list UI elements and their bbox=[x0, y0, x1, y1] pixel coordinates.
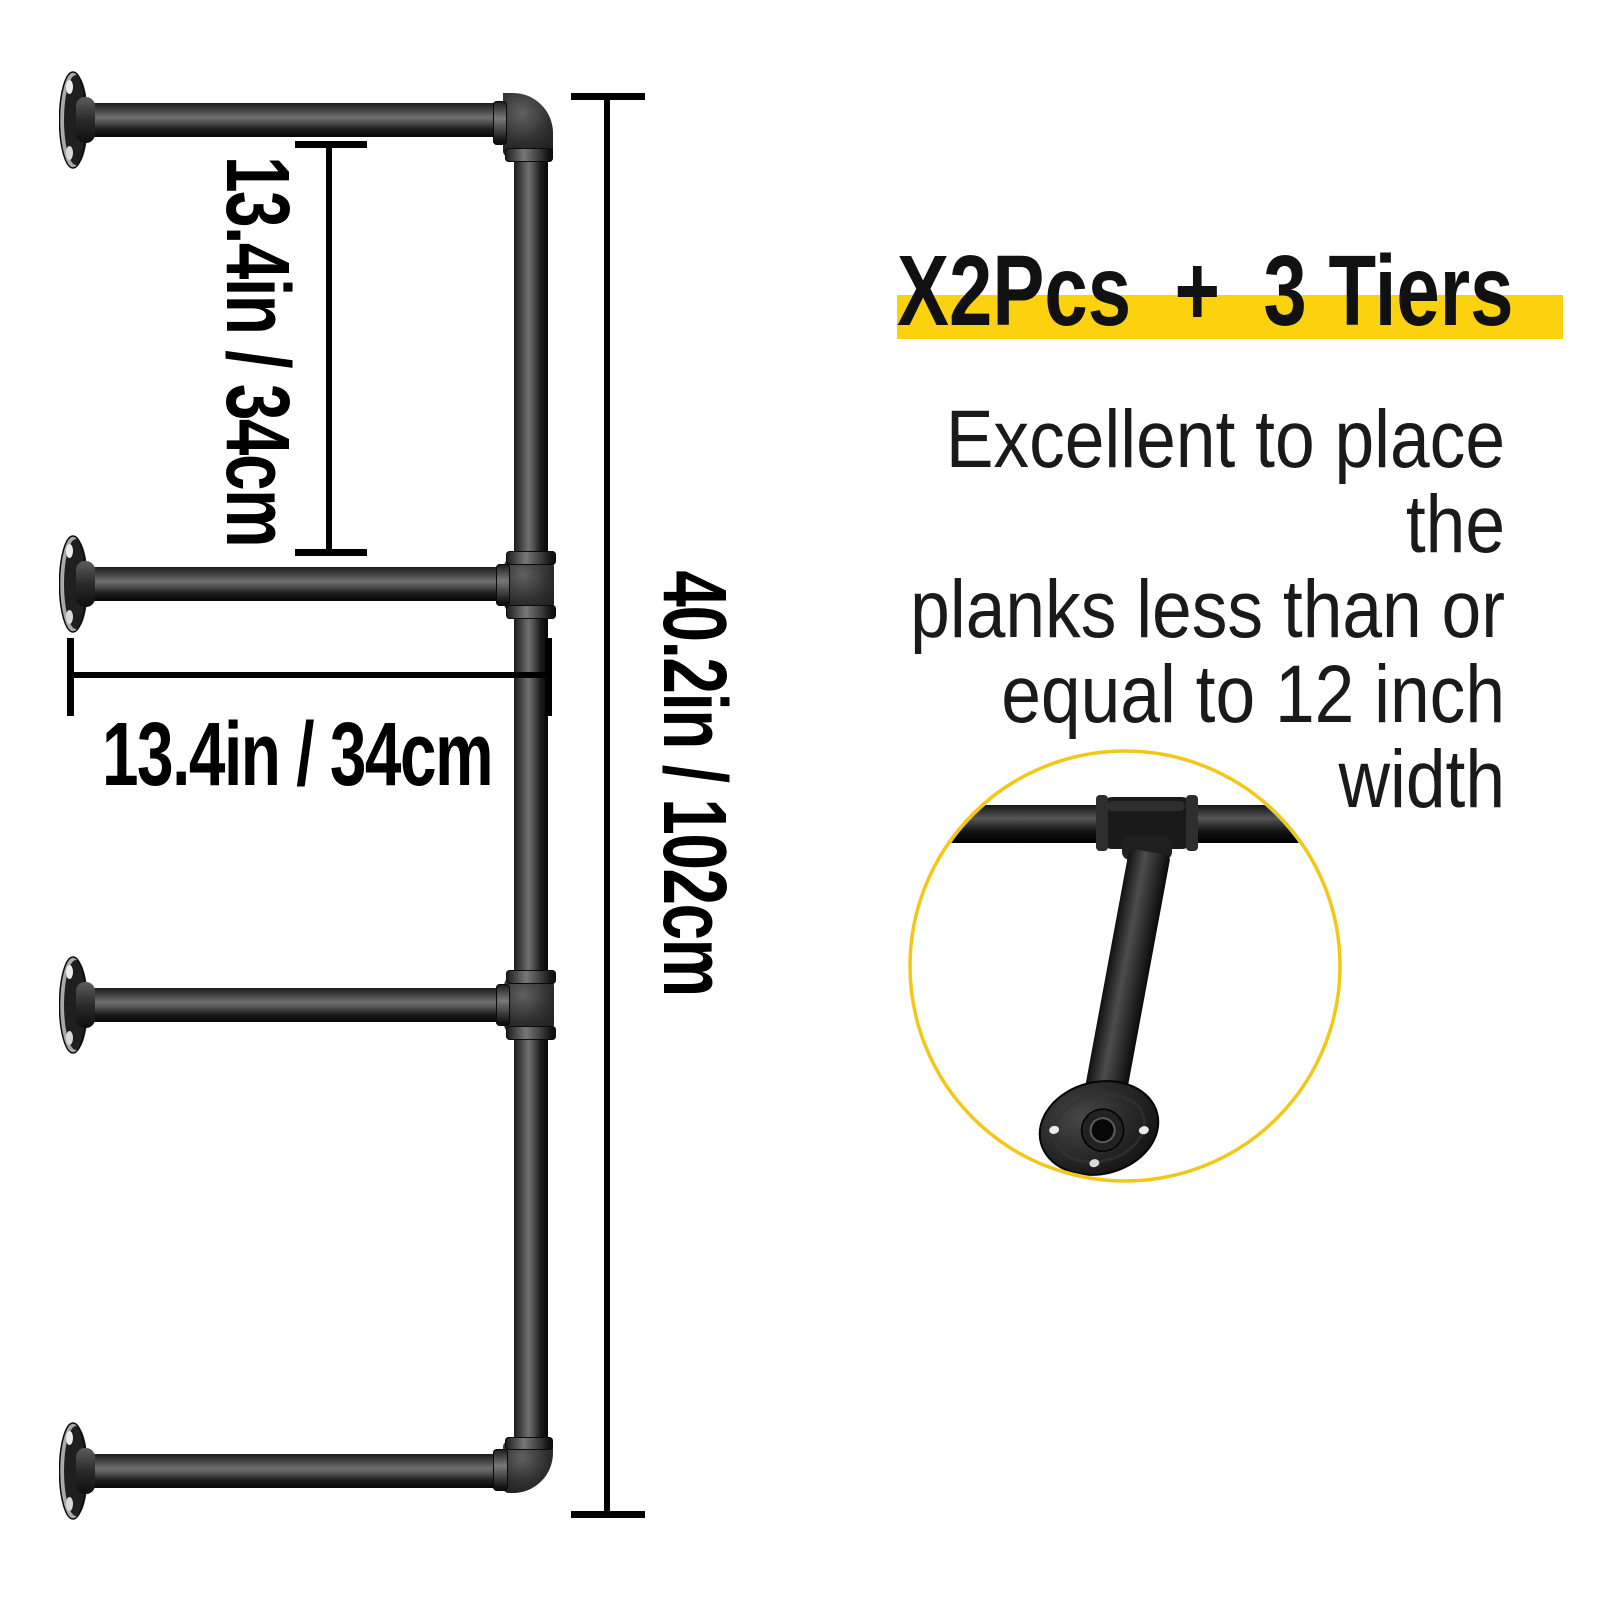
dim-tier-gap-line bbox=[326, 143, 332, 556]
headline-text: X2Pcs + 3 Tiers bbox=[897, 241, 1514, 341]
elbow-fitting-top bbox=[493, 91, 555, 162]
dim-depth-tick-right bbox=[545, 638, 552, 716]
dim-height-tick-top bbox=[571, 93, 645, 100]
dim-depth-tick-left bbox=[67, 638, 74, 716]
tee-fitting-middle bbox=[496, 551, 558, 619]
wall-flange-icon bbox=[59, 534, 95, 634]
description-line: Excellent to place the bbox=[844, 397, 1505, 567]
dim-tier-gap-label: 13.4in / 34cm bbox=[212, 156, 302, 546]
product-infographic: 13.4in / 34cm 13.4in / 34cm 40.2in / 102… bbox=[0, 0, 1600, 1600]
description-line: planks less than or bbox=[844, 567, 1505, 652]
dim-depth-line bbox=[70, 672, 552, 678]
vertical-pipe bbox=[514, 118, 548, 1450]
dim-tier-gap-tick-bottom bbox=[295, 549, 367, 556]
wall-flange-icon bbox=[59, 955, 95, 1055]
dim-depth-label: 13.4in / 34cm bbox=[102, 710, 492, 800]
elbow-fitting-bottom bbox=[493, 1437, 555, 1495]
tier-pipe-third bbox=[86, 988, 504, 1022]
tee-fitting-lower bbox=[496, 970, 558, 1040]
dim-tier-gap-tick-top bbox=[295, 141, 367, 148]
dim-height-label: 40.2in / 102cm bbox=[649, 570, 739, 995]
dim-height-tick-bottom bbox=[571, 1511, 645, 1518]
wall-flange-icon bbox=[59, 70, 95, 170]
tier-pipe-top bbox=[86, 103, 506, 137]
tier-pipe-bottom bbox=[86, 1454, 506, 1488]
detail-zoom-circle bbox=[903, 744, 1347, 1188]
wall-flange-icon bbox=[59, 1421, 95, 1521]
dim-height-line bbox=[604, 96, 610, 1516]
tier-pipe-second bbox=[86, 567, 504, 601]
